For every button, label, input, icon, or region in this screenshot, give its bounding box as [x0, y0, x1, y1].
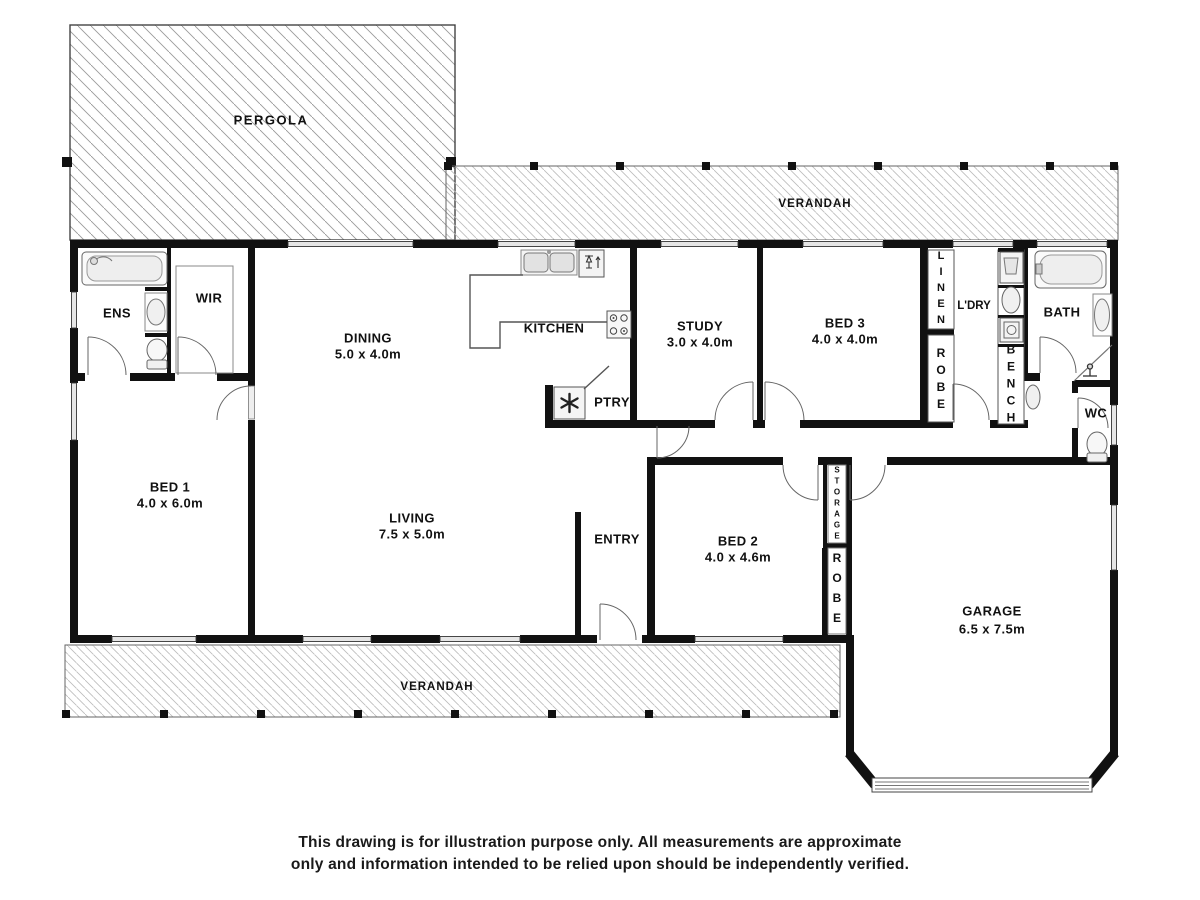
bed1-door-leaf: [249, 386, 255, 419]
wir-label: WIR: [196, 291, 222, 306]
wc-toilet-icon: [1087, 432, 1107, 462]
study-label: STUDY: [677, 319, 723, 334]
linen-label: LINEN: [935, 250, 947, 330]
floorplan-page: PERGOLA VERANDAH VERANDAH ENS WIR DINING…: [0, 0, 1200, 900]
bed1-label: BED 1: [150, 480, 190, 495]
bed2-dims: 4.0 x 4.6m: [705, 550, 771, 565]
dining-dims: 5.0 x 4.0m: [335, 347, 401, 362]
ptry-label: PTRY: [594, 395, 630, 410]
verandah-bottom-label: VERANDAH: [400, 681, 473, 693]
garage-dims: 6.5 x 7.5m: [959, 622, 1025, 637]
bed2-label: BED 2: [718, 534, 758, 549]
verandah-top-label: VERANDAH: [778, 198, 851, 210]
bath-label: BATH: [1044, 305, 1081, 320]
ens-label: ENS: [103, 306, 131, 321]
powder-basin-icon: [1026, 385, 1040, 409]
bed3-label: BED 3: [825, 316, 865, 331]
living-dims: 7.5 x 5.0m: [379, 527, 445, 542]
bed3-dims: 4.0 x 4.0m: [812, 332, 878, 347]
dining-label: DINING: [344, 331, 392, 346]
storage-label: STORAGE: [833, 466, 842, 543]
pergola-label: PERGOLA: [234, 113, 309, 128]
disclaimer-line-2: only and information intended to be reli…: [291, 856, 909, 874]
bench-label: BENCH: [1004, 343, 1018, 428]
floorplan-canvas: [0, 0, 1200, 900]
garage-label: GARAGE: [962, 604, 1021, 619]
washing-machine-icon: [1000, 318, 1023, 342]
kitchen-label: KITCHEN: [524, 321, 585, 336]
laundry-trough-icon: [1000, 252, 1023, 283]
entry-label: ENTRY: [594, 532, 640, 547]
bath-basin-icon: [1093, 294, 1112, 336]
pergola-area: [62, 25, 456, 240]
study-dims: 3.0 x 4.0m: [667, 335, 733, 350]
robe-bottom-label: ROBE: [830, 551, 844, 631]
bed1-dims: 4.0 x 6.0m: [137, 496, 203, 511]
disclaimer-line-1: This drawing is for illustration purpose…: [298, 834, 901, 852]
laundry-tub-icon: [1002, 287, 1020, 313]
kitchen-sink-icon: [521, 250, 577, 275]
robe-top-label: ROBE: [934, 346, 948, 414]
bath-bathtub-icon: [1035, 251, 1106, 288]
dishwasher-icon: [579, 250, 604, 277]
ens-basin-icon: [145, 293, 167, 331]
ldry-label: L'DRY: [957, 300, 991, 312]
garage-door: [872, 778, 1092, 792]
cooktop-icon: [607, 311, 631, 338]
living-label: LIVING: [389, 511, 435, 526]
ens-bathtub-icon: [82, 252, 167, 285]
ens-toilet-icon: [147, 339, 167, 369]
hot-water-unit-icon: [554, 387, 585, 419]
wc-label: WC: [1085, 406, 1107, 421]
